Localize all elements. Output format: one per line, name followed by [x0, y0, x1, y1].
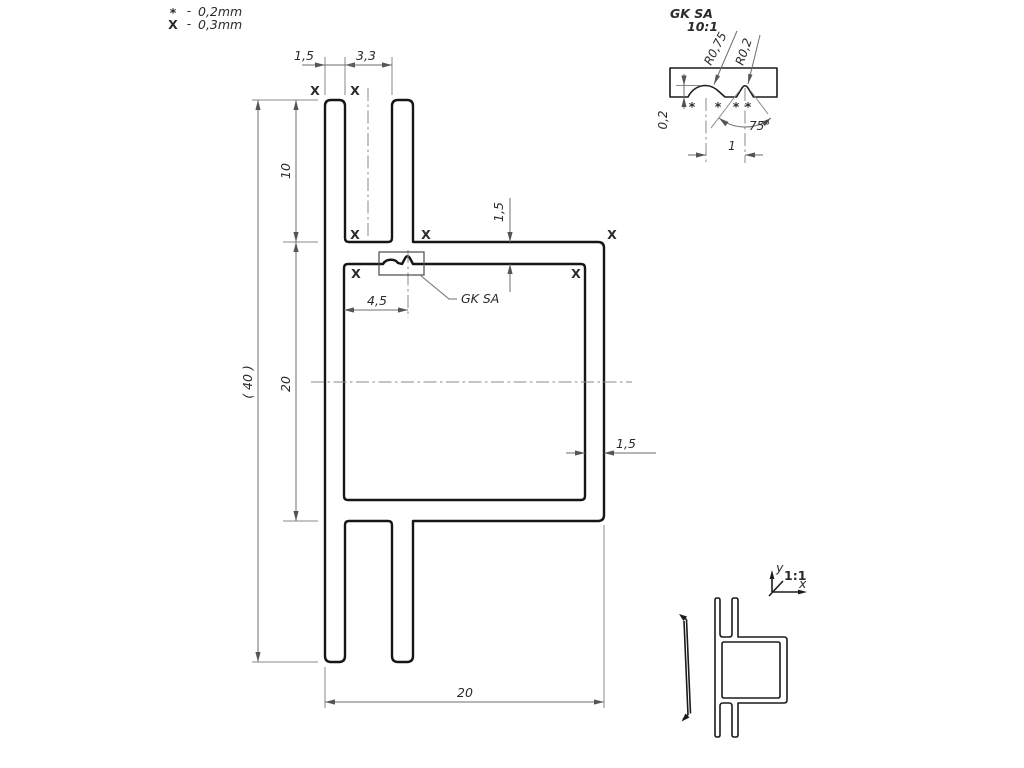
- dim-depth-label: 0,2: [656, 110, 670, 129]
- arrowhead: [681, 76, 686, 86]
- surface-mark-x: X: [350, 227, 360, 242]
- tolerance-legend: * - 0,2mm X - 0,3mm: [168, 3, 242, 32]
- arrowhead: [507, 264, 512, 274]
- axes-symbol: y x 1:1: [769, 560, 807, 596]
- detail-surface-marks: * * * *: [689, 99, 752, 114]
- arrowhead: [382, 62, 392, 67]
- profile-outer-contour: [325, 100, 604, 662]
- legend-x-dash: -: [187, 16, 192, 31]
- arrowhead: [293, 100, 298, 110]
- y-axis-arrow: [770, 570, 775, 579]
- arrowhead: [315, 62, 325, 67]
- dim-wall-width-label: 1,5: [294, 48, 314, 63]
- dim-tube-height-label: 20: [278, 376, 293, 392]
- dim-wall-width: 1,5: [294, 48, 355, 95]
- surface-marks: X X X X X X X: [310, 83, 617, 281]
- dim-groove-pitch: 1: [688, 139, 763, 158]
- surface-mark-x: X: [350, 83, 360, 98]
- arrowhead: [719, 118, 729, 126]
- groove-label: GK SA: [461, 291, 499, 306]
- y-axis-label: y: [775, 560, 784, 575]
- surface-mark-x: X: [421, 227, 431, 242]
- arrowhead: [293, 511, 298, 521]
- detail-bar-outline: [670, 68, 777, 97]
- dim-pitch-label: 1: [728, 139, 736, 153]
- arrowhead: [325, 699, 335, 704]
- arrowhead: [681, 97, 686, 107]
- dim-overall-width: 20: [325, 525, 604, 708]
- small-profile-inner: [722, 642, 780, 698]
- surface-mark-x: X: [351, 266, 361, 281]
- drawing-sheet: * - 0,2mm X - 0,3mm 1,5 3,3 10: [0, 0, 1024, 768]
- scale-label: 1:1: [784, 568, 806, 583]
- surface-mark-x: X: [310, 83, 320, 98]
- detail-scale: 10:1: [687, 19, 718, 34]
- dim-groove-offset-label: 4,5: [367, 293, 387, 308]
- diagonal-axis-line: [769, 581, 783, 596]
- arrowhead: [696, 152, 706, 157]
- main-profile: [325, 100, 604, 662]
- legend-x-value: 0,3mm: [198, 17, 242, 32]
- arrowhead: [255, 652, 260, 662]
- scale-view: y x 1:1: [679, 560, 807, 737]
- dim-fin-height: 10: [278, 100, 318, 242]
- arrowhead: [575, 450, 585, 455]
- dim-total-height-label: ( 40 ): [240, 365, 255, 399]
- legend-x-mark: X: [168, 17, 178, 32]
- surface-mark-star: *: [689, 99, 696, 114]
- detail-view: GK SA 10:1 0,2 1 75°: [656, 6, 777, 163]
- arrowhead: [398, 307, 408, 312]
- arrowhead: [604, 450, 614, 455]
- arrowhead: [745, 152, 755, 157]
- dim-fin-height-label: 10: [278, 163, 293, 179]
- surface-mark-x: X: [571, 266, 581, 281]
- arrowhead: [748, 74, 753, 84]
- dim-slot-width-label: 3,3: [356, 48, 376, 63]
- section-strip: [679, 614, 691, 722]
- dim-overall-width-label: 20: [457, 685, 473, 700]
- arrowhead: [293, 232, 298, 242]
- surface-mark-star: *: [745, 99, 752, 114]
- dim-right-wall-thickness: 1,5: [566, 436, 656, 456]
- surface-mark-star: *: [733, 99, 740, 114]
- surface-mark-star: *: [715, 99, 722, 114]
- dim-angle-label: 75°: [749, 119, 770, 133]
- radius-callouts: R0,75 R0,2: [701, 30, 760, 85]
- dim-groove-offset: 4,5: [344, 293, 408, 313]
- leader-line: [420, 275, 457, 299]
- arrowhead: [344, 307, 354, 312]
- dim-radius-small-label: R0,2: [733, 36, 755, 66]
- arrowhead: [594, 699, 604, 704]
- flank-extension-line: [750, 90, 768, 114]
- small-profile: [715, 598, 787, 737]
- dim-top-wall-thickness: 1,5: [491, 198, 513, 292]
- arrowhead: [714, 74, 720, 84]
- arrowhead: [255, 100, 260, 110]
- dim-top-wall-label: 1,5: [491, 202, 506, 222]
- surface-mark-x: X: [607, 227, 617, 242]
- small-profile-outer: [715, 598, 787, 737]
- arrowhead: [293, 242, 298, 252]
- arrowhead: [507, 232, 512, 242]
- dim-right-wall-label: 1,5: [616, 436, 636, 451]
- technical-drawing: * - 0,2mm X - 0,3mm 1,5 3,3 10: [0, 0, 1024, 768]
- dim-radius-large-label: R0,75: [701, 30, 729, 68]
- groove-callout: GK SA: [379, 252, 499, 306]
